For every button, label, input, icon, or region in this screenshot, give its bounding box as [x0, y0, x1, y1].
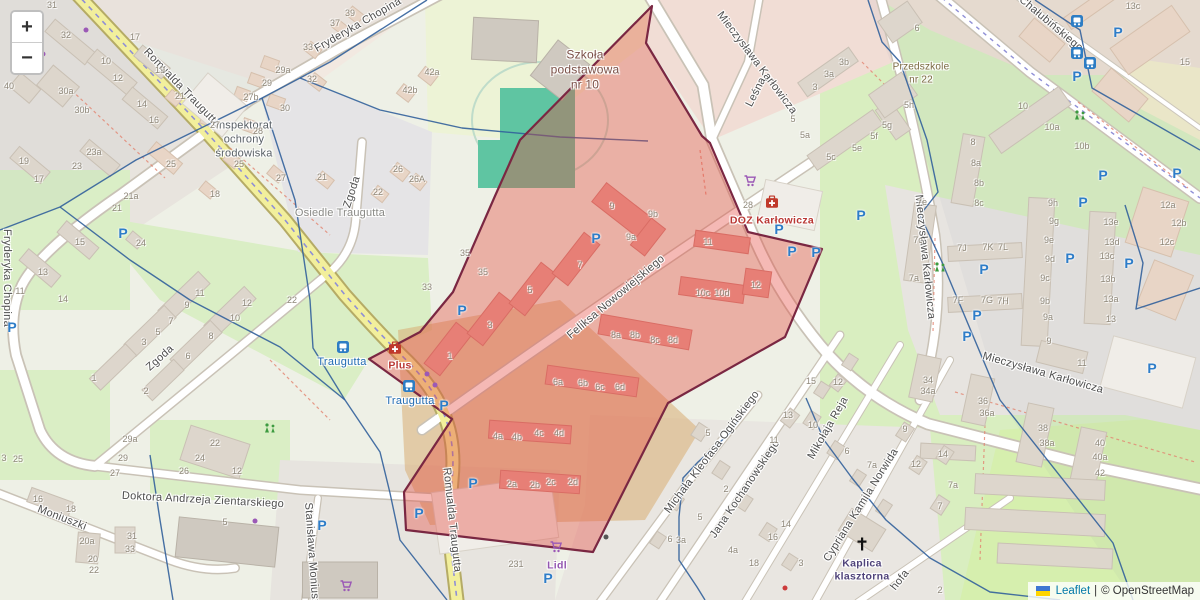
zoom-control: + −	[10, 10, 44, 75]
attribution-separator: |	[1094, 585, 1097, 597]
openstreetmap-link[interactable]: © OpenStreetMap	[1101, 585, 1194, 597]
leaflet-link[interactable]: Leaflet	[1056, 585, 1091, 597]
map-tiles	[0, 0, 1200, 600]
zoom-in-button[interactable]: +	[12, 12, 42, 43]
attribution-bar: Leaflet | © OpenStreetMap	[1028, 582, 1200, 600]
ukraine-flag-icon	[1036, 586, 1050, 596]
zoom-out-button[interactable]: −	[12, 43, 42, 73]
map-canvas[interactable]: Romualda TrauguttaRomualda TrauguttaFryd…	[0, 0, 1200, 600]
